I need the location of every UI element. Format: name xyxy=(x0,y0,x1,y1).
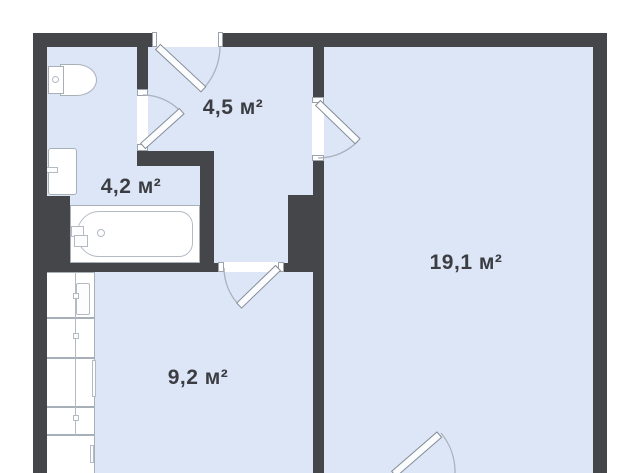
room-label-bathroom: 4,2 м² xyxy=(101,175,162,199)
living-room-doorway xyxy=(312,97,324,161)
kitchen-doorway xyxy=(218,262,284,272)
kitchen-counter xyxy=(46,272,95,473)
floor-plan: 4,5 м² 4,2 м² 9,2 м² 19,1 м² xyxy=(0,0,640,473)
bathroom-doorway xyxy=(137,89,148,151)
door-jamb xyxy=(137,144,148,151)
room-label-kitchen: 9,2 м² xyxy=(168,366,229,390)
room-label-hallway: 4,5 м² xyxy=(203,96,264,120)
door-jamb xyxy=(312,155,324,161)
wall-segment xyxy=(47,196,70,264)
washbasin xyxy=(48,148,77,195)
wall-segment xyxy=(288,195,313,263)
wall-segment xyxy=(223,33,607,47)
door-jamb xyxy=(278,262,284,272)
wall-segment xyxy=(313,161,324,473)
wall-segment xyxy=(137,47,148,89)
wall-segment xyxy=(313,47,324,97)
wall-segment xyxy=(284,263,313,272)
door-jamb xyxy=(218,32,223,47)
wall-segment xyxy=(47,263,218,272)
door-jamb xyxy=(137,89,148,96)
wall-segment xyxy=(33,33,152,47)
wall-segment xyxy=(200,164,214,265)
room-label-living-room: 19,1 м² xyxy=(430,251,503,275)
wall-segment xyxy=(593,33,607,473)
door-jamb xyxy=(312,97,324,103)
bathtub xyxy=(70,205,200,263)
door-jamb xyxy=(152,32,157,47)
entrance-doorway xyxy=(152,32,223,47)
door-jamb xyxy=(218,262,224,272)
toilet xyxy=(48,64,97,96)
wall-segment xyxy=(33,33,47,473)
